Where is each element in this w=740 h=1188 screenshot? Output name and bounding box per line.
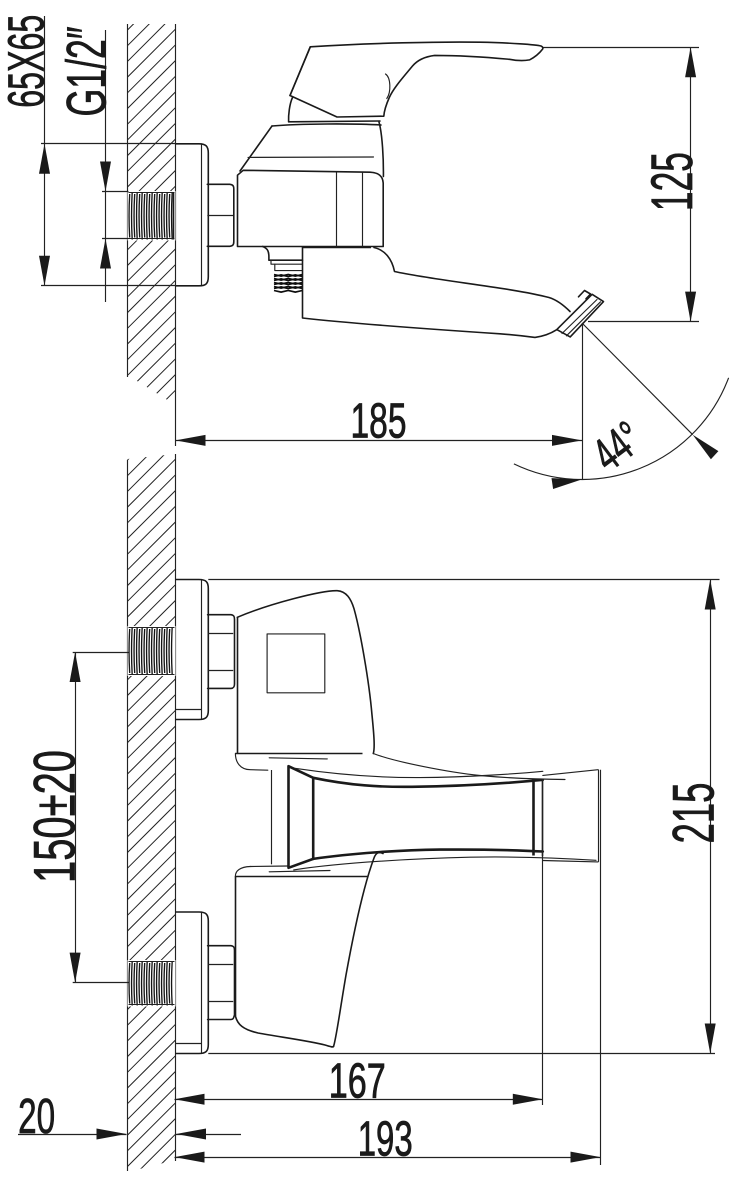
svg-text:215: 215 bbox=[662, 783, 727, 844]
svg-text:167: 167 bbox=[329, 1055, 386, 1109]
svg-text:20: 20 bbox=[18, 1090, 55, 1144]
svg-text:193: 193 bbox=[358, 1113, 413, 1167]
svg-text:44°: 44° bbox=[582, 411, 651, 482]
svg-text:G1/2″: G1/2″ bbox=[55, 27, 118, 117]
svg-text:185: 185 bbox=[351, 394, 407, 448]
svg-text:125: 125 bbox=[640, 152, 705, 211]
svg-text:65X65: 65X65 bbox=[0, 15, 55, 108]
svg-text:150±20: 150±20 bbox=[23, 750, 88, 883]
